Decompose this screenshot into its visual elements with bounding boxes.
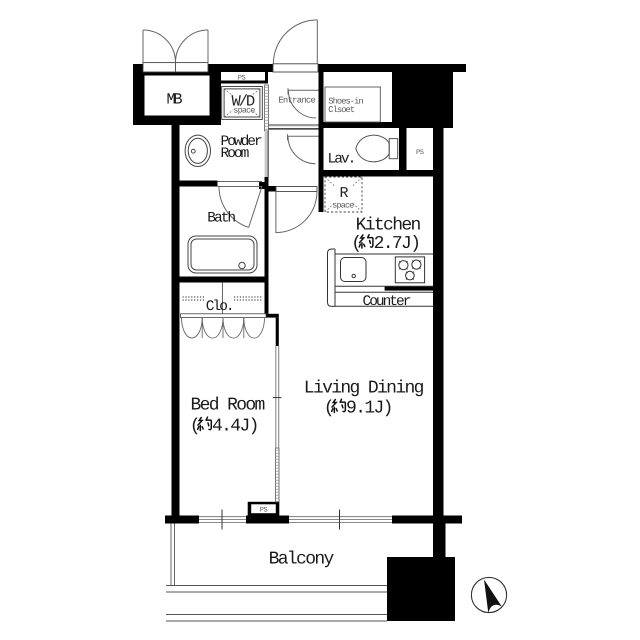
svg-text:Bath: Bath [207, 210, 235, 226]
svg-text:Clsoet: Clsoet [328, 105, 355, 115]
svg-text:space: space [332, 200, 354, 210]
svg-text:PS: PS [416, 149, 424, 157]
svg-text:(: ( [324, 398, 333, 418]
svg-text:Bed Room: Bed Room [191, 396, 265, 416]
svg-text:R: R [340, 185, 349, 202]
svg-text:Kitchen: Kitchen [356, 216, 421, 236]
svg-text:MB: MB [167, 91, 183, 109]
svg-text:Entrance: Entrance [278, 95, 315, 105]
svg-text:Room: Room [221, 146, 249, 162]
svg-text:Counter: Counter [363, 294, 411, 310]
svg-text:Clo.: Clo. [206, 299, 233, 315]
svg-text:4.4J): 4.4J) [212, 416, 258, 436]
svg-text:Living Dining: Living Dining [304, 379, 424, 399]
svg-text:PS: PS [238, 74, 246, 82]
svg-text:space: space [233, 105, 255, 115]
svg-text:2.7J): 2.7J) [374, 234, 420, 254]
svg-text:Balcony: Balcony [269, 550, 335, 570]
svg-text:(: ( [351, 234, 360, 254]
svg-text:(: ( [190, 416, 199, 436]
svg-text:PS: PS [260, 507, 268, 515]
svg-text:Lav.: Lav. [328, 152, 355, 168]
svg-text:9.1J): 9.1J) [346, 398, 392, 418]
